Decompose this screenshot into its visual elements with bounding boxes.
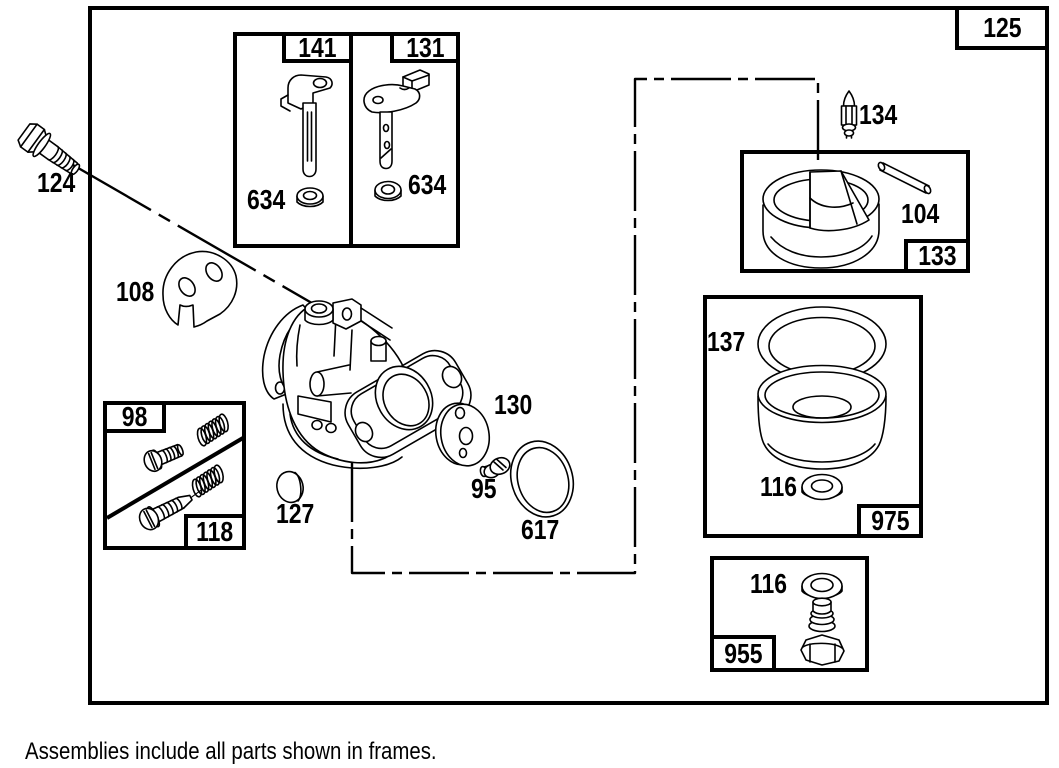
needle-134-drawing xyxy=(842,91,857,138)
callout-124: 124 xyxy=(37,169,84,197)
callout-127: 127 xyxy=(276,500,323,528)
bowl-nut-drawing xyxy=(801,598,844,665)
label-box-975: 975 xyxy=(857,504,923,538)
oring-617-drawing xyxy=(502,433,583,524)
label-131: 131 xyxy=(406,34,444,62)
label-box-141: 141 xyxy=(282,32,353,63)
parts-diagram-page: 125 141 131 133 975 955 98 118 124 108 6… xyxy=(0,0,1059,768)
spring-98-drawing xyxy=(191,411,234,449)
label-118: 118 xyxy=(196,518,233,546)
label-box-133: 133 xyxy=(904,239,970,273)
label-box-955: 955 xyxy=(710,635,776,672)
label-133: 133 xyxy=(918,242,956,270)
callout-137: 137 xyxy=(707,328,754,356)
label-141: 141 xyxy=(298,34,336,62)
assembly-connection-line xyxy=(352,79,818,573)
bracket-108-drawing xyxy=(163,252,237,327)
washer-116-bowl-drawing xyxy=(802,475,842,500)
label-box-125: 125 xyxy=(955,6,1049,50)
callout-617: 617 xyxy=(521,516,568,544)
label-box-118: 118 xyxy=(184,514,246,550)
callout-104: 104 xyxy=(901,200,948,228)
label-box-98: 98 xyxy=(103,401,166,433)
callout-108: 108 xyxy=(116,278,163,306)
label-975: 975 xyxy=(871,507,909,535)
callout-95: 95 xyxy=(471,475,502,503)
callout-116-bowl: 116 xyxy=(760,473,805,501)
footnote: Assemblies include all parts shown in fr… xyxy=(25,738,437,766)
label-125: 125 xyxy=(983,14,1021,42)
callout-130: 130 xyxy=(494,391,541,419)
callout-634-right: 634 xyxy=(408,171,455,199)
callout-134: 134 xyxy=(859,101,906,129)
label-box-131: 131 xyxy=(390,32,460,63)
label-98: 98 xyxy=(122,403,148,431)
washer-116-nut-drawing xyxy=(802,574,842,599)
idle-screw-98-drawing xyxy=(141,439,186,473)
float-bowl-drawing xyxy=(758,366,886,470)
label-955: 955 xyxy=(724,640,762,668)
callout-634-left: 634 xyxy=(247,186,294,214)
callout-116-nut: 116 xyxy=(750,570,795,598)
